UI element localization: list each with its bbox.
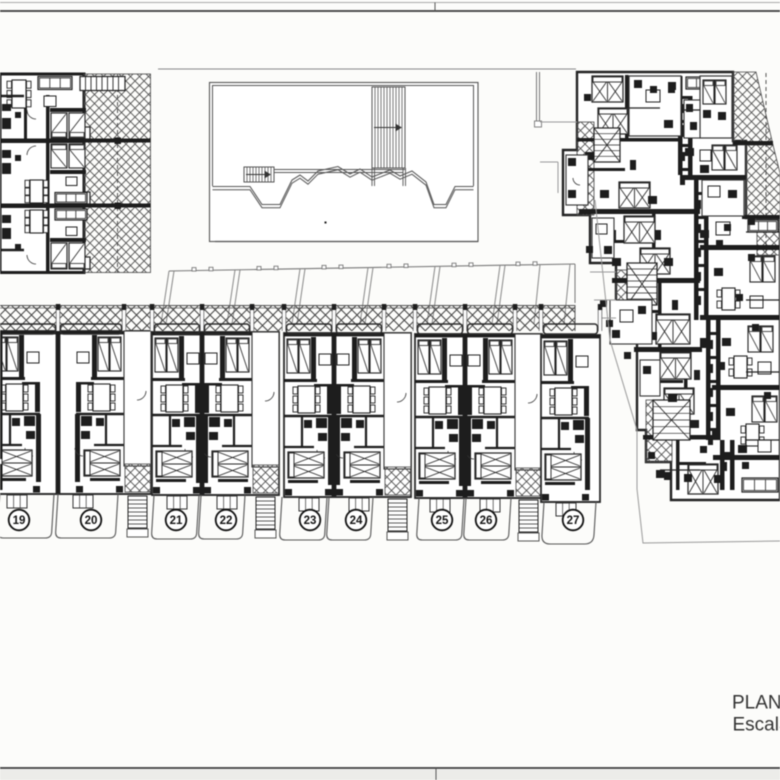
svg-text:24: 24: [350, 515, 363, 527]
svg-text:21: 21: [170, 515, 183, 527]
svg-text:27: 27: [567, 515, 580, 527]
svg-text:PLAN: PLAN: [732, 693, 780, 714]
svg-text:Escala: Escala: [733, 715, 780, 736]
svg-text:19: 19: [13, 515, 26, 527]
svg-text:20: 20: [85, 515, 98, 527]
svg-text:22: 22: [220, 515, 233, 527]
svg-text:26: 26: [480, 515, 493, 527]
svg-text:25: 25: [436, 515, 449, 527]
svg-text:23: 23: [304, 515, 317, 527]
